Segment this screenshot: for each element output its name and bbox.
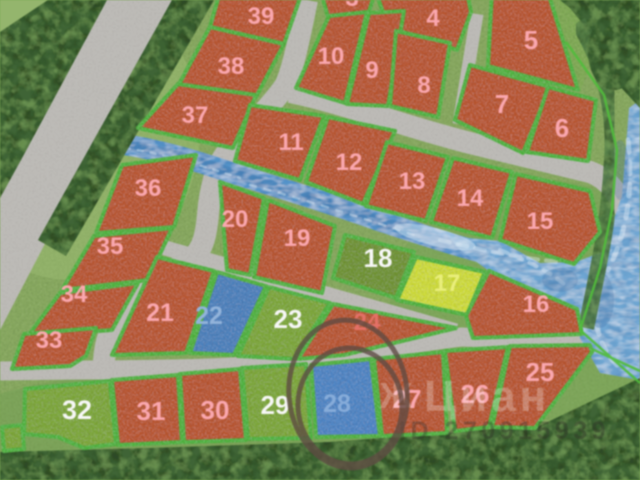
svg-text:ID 270915939: ID 270915939 — [399, 417, 610, 445]
svg-text:Циан: Циан — [424, 372, 550, 421]
